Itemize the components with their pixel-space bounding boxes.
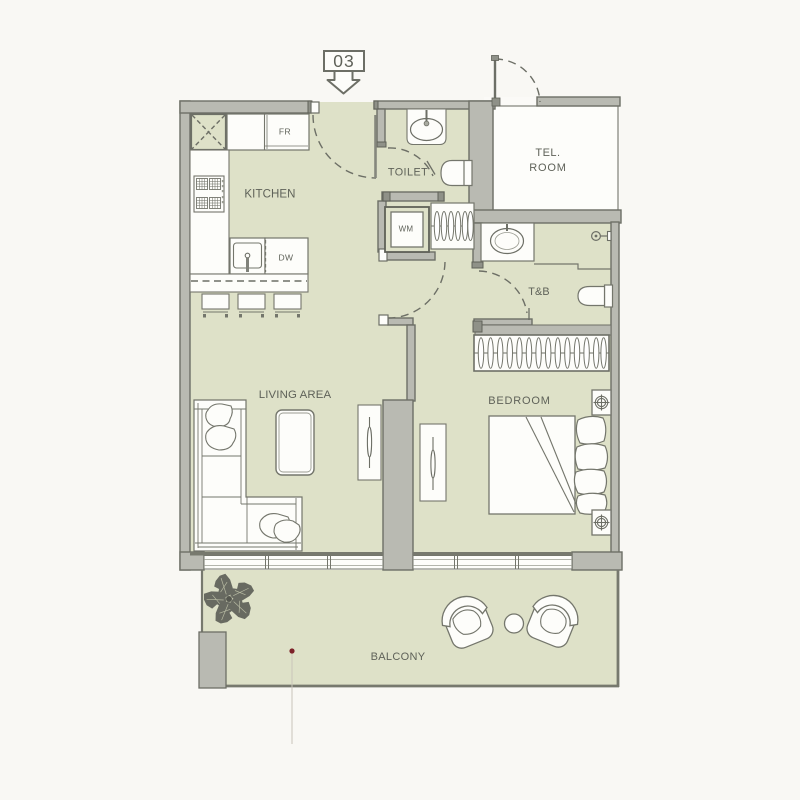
svg-text:TOILET: TOILET [388, 167, 428, 179]
svg-text:TEL.: TEL. [535, 147, 560, 159]
svg-text:BALCONY: BALCONY [371, 651, 426, 663]
svg-text:WM: WM [399, 225, 414, 234]
svg-text:KITCHEN: KITCHEN [244, 189, 295, 201]
svg-text:LIVING AREA: LIVING AREA [259, 389, 332, 401]
svg-text:FR: FR [279, 127, 291, 137]
svg-text:ROOM: ROOM [529, 162, 566, 174]
svg-text:T&B: T&B [528, 286, 550, 298]
svg-text:BEDROOM: BEDROOM [488, 395, 550, 407]
svg-text:DW: DW [279, 253, 294, 263]
svg-text:03: 03 [333, 51, 354, 71]
